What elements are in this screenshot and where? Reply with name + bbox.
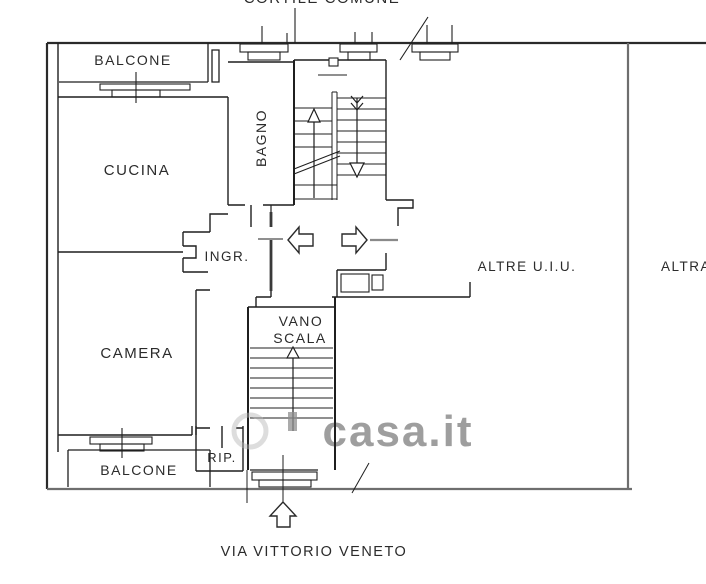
room-label-balcone-bottom: BALCONE — [100, 462, 177, 478]
building-entrance-walls — [247, 455, 369, 503]
elevator-walls — [332, 270, 470, 297]
watermark-logo-mark — [288, 412, 297, 431]
room-label-camera: CAMERA — [100, 345, 173, 362]
label-altra: ALTRA — [661, 259, 706, 274]
kitchen-window-icon — [100, 72, 190, 103]
room-label-vano: VANO — [279, 313, 324, 329]
arrow-right-icon — [342, 227, 367, 253]
floor-plan: casa.it CORTILE COMUNE BALCONE CUCINA BA… — [0, 0, 706, 584]
watermark-text: casa.it — [323, 407, 474, 456]
floor-plan-svg: casa.it CORTILE COMUNE BALCONE CUCINA BA… — [0, 0, 706, 584]
entrance-door — [256, 205, 283, 307]
landing-walls — [386, 200, 413, 270]
bedroom-window-icon — [90, 428, 152, 458]
street-entrance-arrow-icon — [270, 502, 296, 527]
stairs-down-arrow-icon — [350, 96, 364, 177]
room-label-rip: RIP. — [207, 450, 237, 465]
upper-stairs-steps — [294, 92, 386, 200]
arrow-left-icon — [288, 227, 313, 253]
courtyard-label: CORTILE COMUNE — [244, 0, 401, 7]
room-label-balcone-top: BALCONE — [94, 52, 171, 68]
room-label-cucina: CUCINA — [104, 162, 171, 179]
room-label-ingresso: INGR. — [204, 249, 249, 264]
room-label-scala: SCALA — [273, 330, 326, 346]
kitchen-walls — [58, 97, 228, 272]
watermark: casa.it — [234, 407, 473, 456]
room-label-bagno: BAGNO — [253, 109, 269, 167]
top-facade-windows — [240, 8, 458, 60]
street-label: VIA VITTORIO VENETO — [221, 544, 408, 560]
label-altre-uiu: ALTRE U.I.U. — [478, 259, 577, 274]
